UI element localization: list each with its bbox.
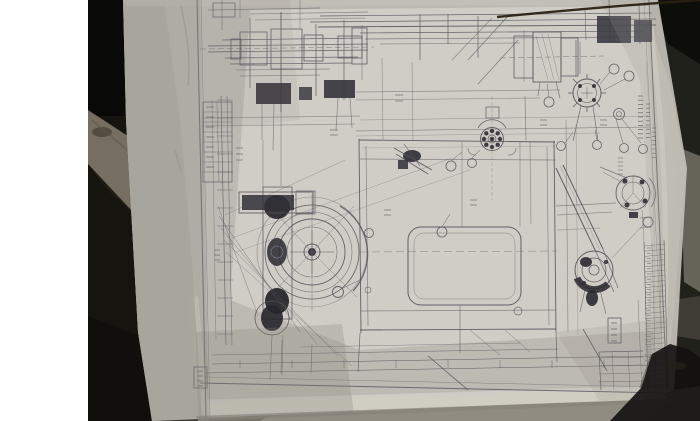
shoe-shade [666, 362, 686, 370]
bolt-hole [643, 199, 648, 204]
letterbox-left-margin [0, 0, 88, 421]
bottom-left-shade [196, 324, 354, 420]
bolt-hole [490, 145, 494, 149]
hatched-block [324, 80, 355, 98]
center-flange-detail-shape [490, 137, 495, 142]
hatched-block [242, 195, 294, 210]
belt-and-pulley-detail-shape [586, 290, 598, 306]
bolt-hole [482, 137, 486, 141]
bolt-hole [592, 98, 596, 102]
bolt-hole [625, 203, 630, 208]
belt-and-pulley-detail-shape [580, 257, 592, 267]
hatched-block [299, 87, 312, 100]
bolt-hole [582, 281, 586, 285]
gear-dark [267, 238, 287, 266]
white-margin [0, 0, 88, 421]
bolt-hole [578, 98, 582, 102]
blueprint-photo [0, 0, 700, 421]
bolt-hole [496, 131, 500, 135]
bolt-hole [498, 137, 502, 141]
bolt-hole [490, 129, 494, 133]
bolt-hole [604, 260, 608, 264]
center-flange-detail-shape [398, 160, 408, 169]
bolt-hole [640, 180, 645, 185]
screenshot-root [0, 0, 700, 421]
bolt-hole [592, 84, 596, 88]
bolt-hole [484, 143, 488, 147]
bolt-hole [578, 84, 582, 88]
top-left-shade [197, 0, 300, 130]
gear-dark [261, 305, 283, 331]
bolt-hole [484, 131, 488, 135]
bolt-hole [496, 143, 500, 147]
right-bearing-detail-shape [629, 212, 638, 218]
